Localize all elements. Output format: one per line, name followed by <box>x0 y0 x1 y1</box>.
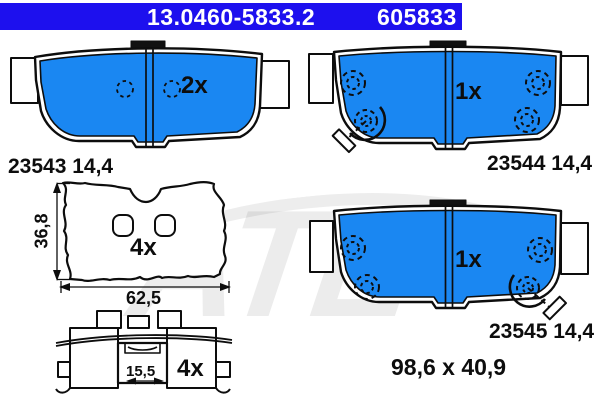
pad-top-right-quantity: 1x <box>455 80 482 104</box>
shim-width-dimension: 62,5 <box>126 289 161 307</box>
shim-quantity: 4x <box>130 236 157 260</box>
clip-quantity: 4x <box>177 357 204 381</box>
shim-height-dimension: 36,8 <box>33 213 51 248</box>
pad-top-left-drawing <box>11 41 289 147</box>
pad-top-right-drawing <box>309 41 588 152</box>
pad-set-dimensions: 98,6 x 40,9 <box>391 356 506 379</box>
pad-top-left-quantity: 2x <box>181 74 208 98</box>
pad-bottom-right-part-number: 23545 14,4 <box>489 321 594 342</box>
clip-width-dimension: 15,5 <box>126 364 155 379</box>
pad-bottom-right-drawing <box>310 200 588 319</box>
pad-top-right-part-number: 23544 14,4 <box>487 153 592 174</box>
clip-drawing <box>56 311 232 393</box>
catalog-page: ATE 13.0460-5833.2 605833 <box>0 0 600 400</box>
pad-top-left-part-number: 23543 14,4 <box>8 156 113 177</box>
pad-bottom-right-quantity: 1x <box>455 248 482 272</box>
